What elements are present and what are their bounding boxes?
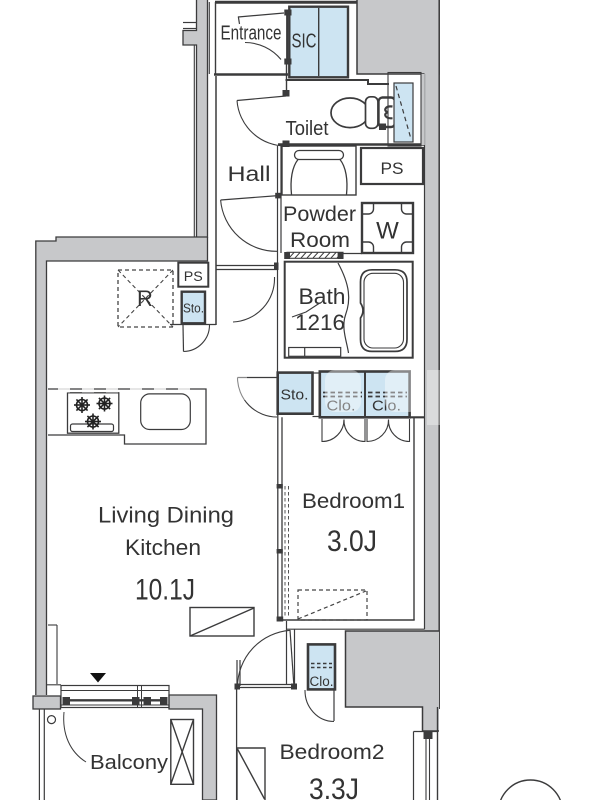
svg-text:Bedroom1: Bedroom1 xyxy=(302,490,405,513)
svg-text:PS: PS xyxy=(184,268,203,284)
svg-text:SIC: SIC xyxy=(292,31,317,53)
svg-text:Sto.: Sto. xyxy=(281,387,309,404)
svg-text:10.1J: 10.1J xyxy=(135,574,195,607)
svg-text:W: W xyxy=(376,218,399,245)
svg-text:Bath: Bath xyxy=(299,284,346,309)
svg-text:Toilet: Toilet xyxy=(286,118,329,140)
svg-text:Hall: Hall xyxy=(228,163,271,186)
svg-text:Room: Room xyxy=(290,229,350,252)
svg-text:Living Dining: Living Dining xyxy=(98,503,234,528)
svg-text:PS: PS xyxy=(381,159,404,178)
svg-text:3.3J: 3.3J xyxy=(309,773,359,800)
svg-text:Kitchen: Kitchen xyxy=(125,535,201,560)
svg-text:Sto.: Sto. xyxy=(183,301,204,316)
svg-text:Bedroom2: Bedroom2 xyxy=(280,741,385,764)
svg-text:3.0J: 3.0J xyxy=(327,525,377,558)
svg-text:Powder: Powder xyxy=(283,203,356,226)
svg-text:Balcony: Balcony xyxy=(90,752,168,774)
svg-text:Clo.: Clo. xyxy=(310,674,334,689)
svg-text:Entrance: Entrance xyxy=(221,23,282,45)
svg-text:R: R xyxy=(137,286,153,311)
